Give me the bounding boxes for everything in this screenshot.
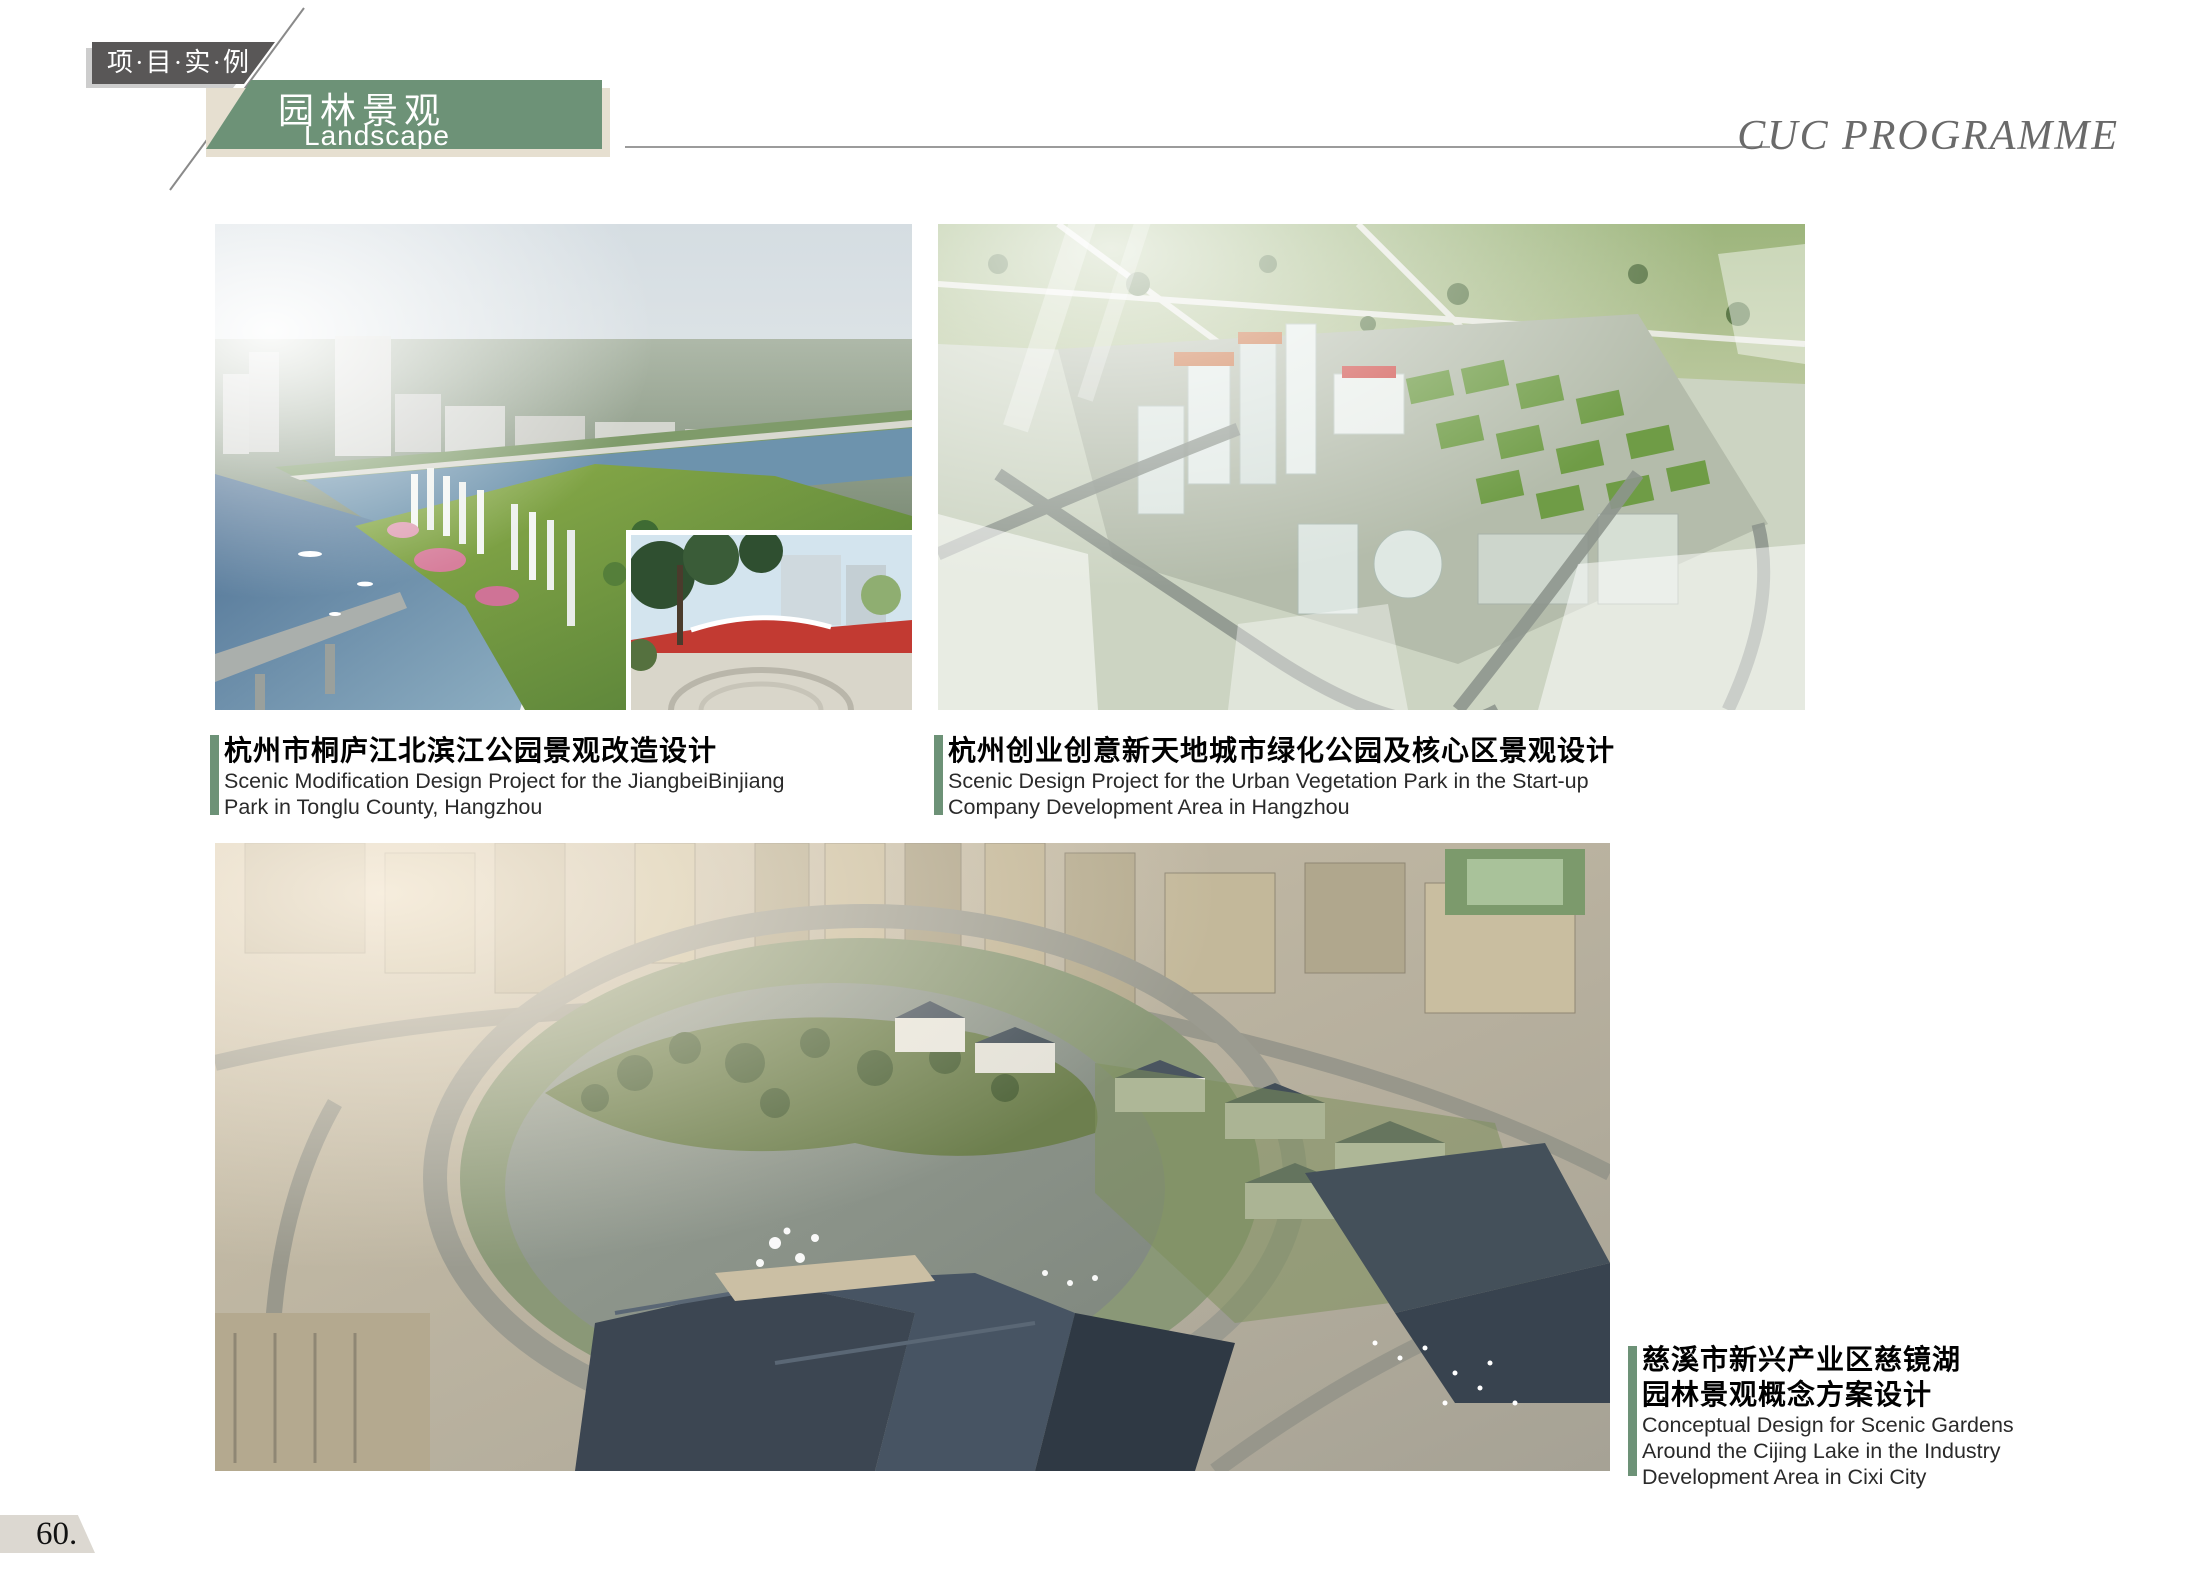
- project-image-river-park: [215, 224, 912, 710]
- page-number: 60.: [36, 1516, 77, 1552]
- urban-park-render: [938, 224, 1805, 710]
- caption-accent-bar: [934, 735, 943, 815]
- project-3-title-en-line3: Development Area in Cixi City: [1642, 1464, 2014, 1490]
- project-2-title-zh: 杭州创业创意新天地城市绿化公园及核心区景观设计: [948, 733, 1615, 768]
- project-1-title-en-line2: Park in Tonglu County, Hangzhou: [224, 794, 785, 820]
- section-tab: 项·目·实·例: [92, 42, 275, 84]
- project-1-title-zh: 杭州市桐庐江北滨江公园景观改造设计: [224, 733, 785, 768]
- project-image-lake-garden: [215, 843, 1610, 1471]
- section-tab-label: 项·目·实·例: [107, 48, 251, 77]
- project-1-title-en-line1: Scenic Modification Design Project for t…: [224, 768, 785, 794]
- lake-garden-render: [215, 843, 1610, 1471]
- caption-accent-bar: [210, 735, 219, 815]
- project-3-title-zh-line2: 园林景观概念方案设计: [1642, 1377, 2014, 1412]
- project-3-title-en-line1: Conceptual Design for Scenic Gardens: [1642, 1412, 2014, 1438]
- project-image-urban-park: [938, 224, 1805, 710]
- park-inset-photo: [626, 530, 912, 710]
- project-2-title-en-line2: Company Development Area in Hangzhou: [948, 794, 1615, 820]
- brochure-page: 项·目·实·例 园林景观 Landscape Architecture CUC …: [0, 0, 2199, 1580]
- project-3-title-zh-line1: 慈溪市新兴产业区慈镜湖: [1642, 1342, 2014, 1377]
- programme-title: CUC PROGRAMME: [1737, 112, 2119, 160]
- project-2-title-en-line1: Scenic Design Project for the Urban Vege…: [948, 768, 1615, 794]
- project-3-title-en-line2: Around the Cijing Lake in the Industry: [1642, 1438, 2014, 1464]
- header-rule: [625, 146, 1770, 148]
- page-number-tab: 60.: [0, 1515, 95, 1553]
- caption-accent-bar: [1628, 1346, 1637, 1476]
- category-banner: 园林景观 Landscape Architecture: [206, 80, 602, 149]
- park-inset-render: [631, 535, 912, 710]
